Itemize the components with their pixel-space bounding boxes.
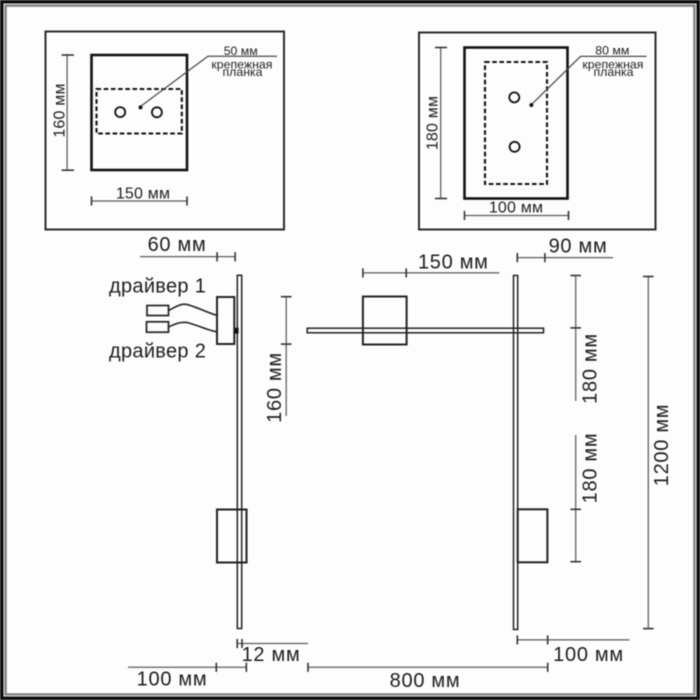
svg-text:150 мм: 150 мм <box>418 251 489 273</box>
svg-text:180 мм: 180 мм <box>580 333 602 404</box>
svg-text:12 мм: 12 мм <box>242 644 301 666</box>
svg-text:100 мм: 100 мм <box>137 669 208 691</box>
svg-text:планка: планка <box>223 65 263 79</box>
svg-text:160 мм: 160 мм <box>264 352 286 423</box>
svg-text:планка: планка <box>594 65 634 79</box>
svg-text:160 мм: 160 мм <box>52 83 69 137</box>
svg-text:180 мм: 180 мм <box>580 433 602 504</box>
svg-text:90 мм: 90 мм <box>549 235 608 257</box>
svg-text:80 мм: 80 мм <box>595 44 629 58</box>
svg-text:50 мм: 50 мм <box>224 44 258 58</box>
svg-text:драйвер 2: драйвер 2 <box>109 341 206 363</box>
svg-text:1200 мм: 1200 мм <box>651 404 673 486</box>
svg-text:150 мм: 150 мм <box>116 185 170 202</box>
svg-text:драйвер 1: драйвер 1 <box>109 276 206 298</box>
svg-text:800 мм: 800 мм <box>390 670 461 692</box>
svg-text:60 мм: 60 мм <box>148 234 207 256</box>
svg-text:100 мм: 100 мм <box>489 200 543 217</box>
svg-text:180 мм: 180 мм <box>425 96 442 150</box>
svg-text:100 мм: 100 мм <box>553 644 624 666</box>
